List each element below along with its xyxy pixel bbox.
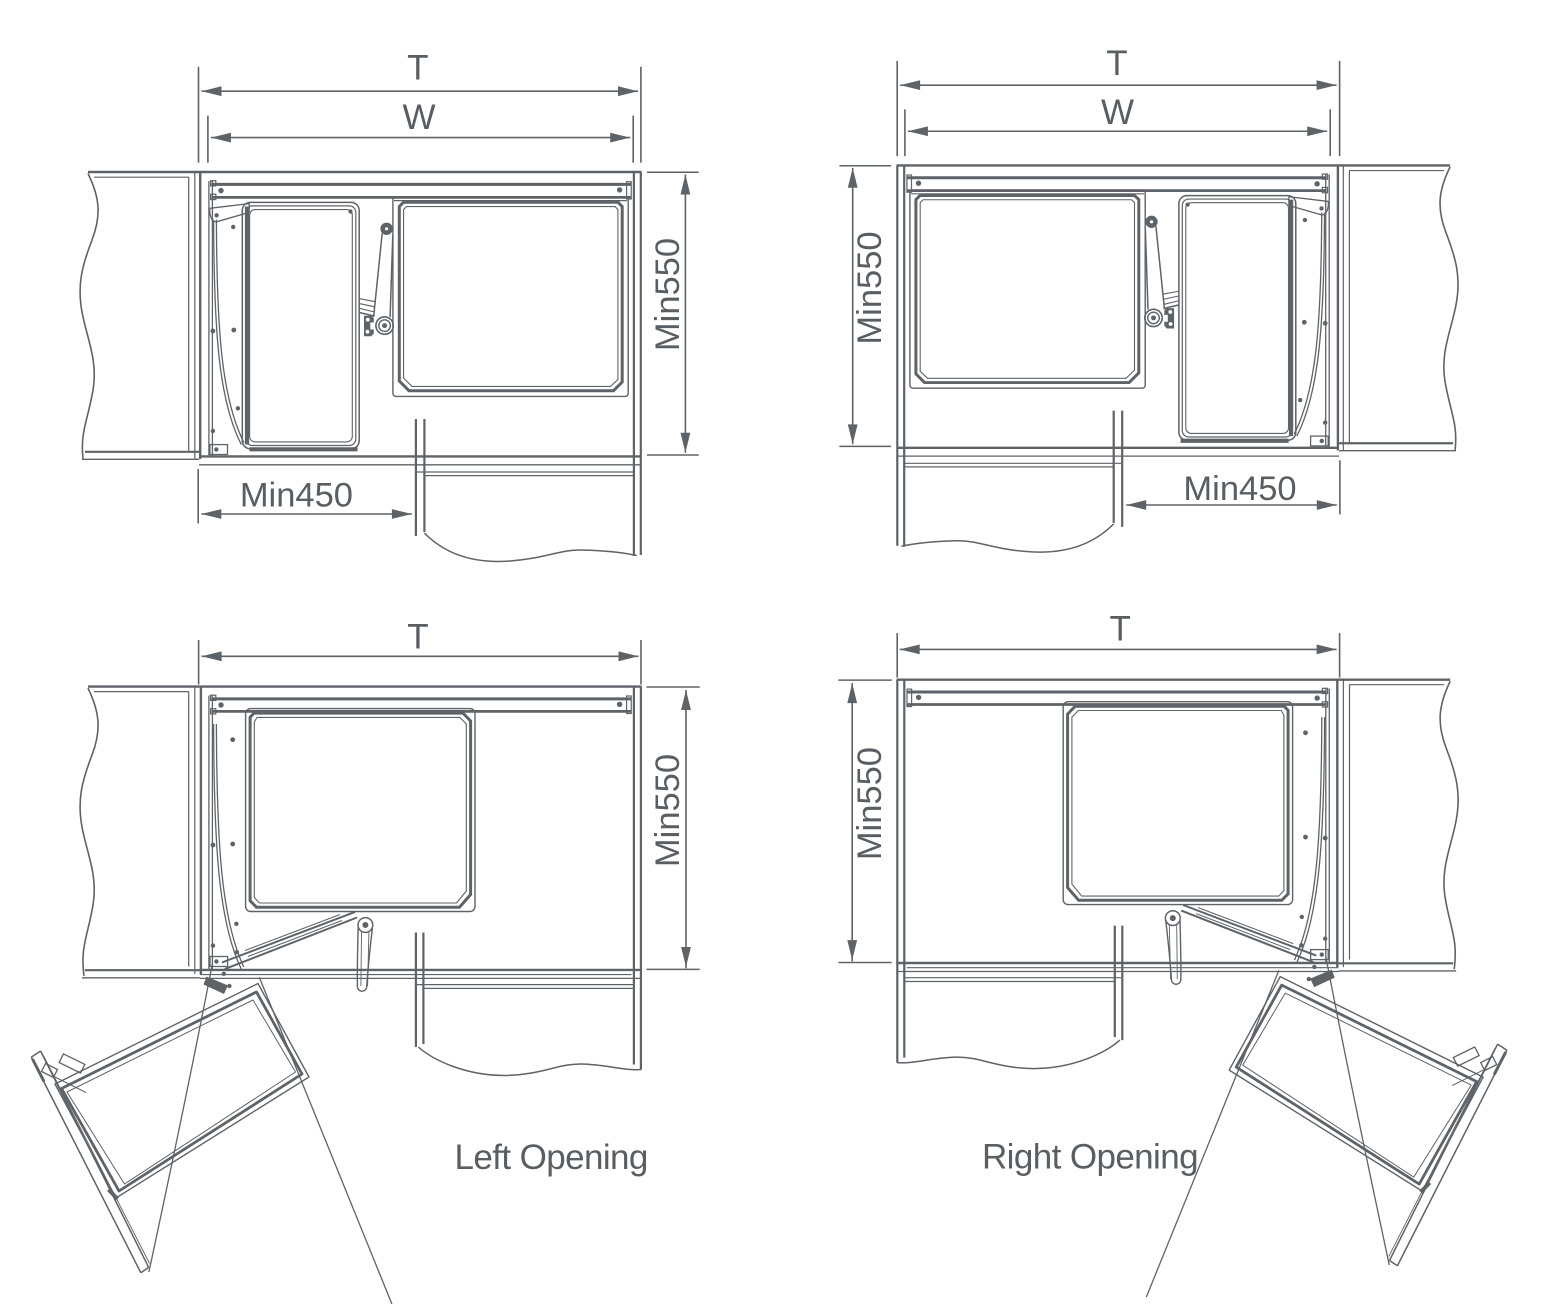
svg-text:Left Opening: Left Opening [455,1138,648,1177]
svg-text:W: W [402,98,435,137]
svg-text:Min550: Min550 [649,238,687,351]
svg-text:T: T [1106,44,1127,83]
svg-text:Min450: Min450 [240,477,353,515]
svg-text:T: T [407,618,428,657]
svg-text:W: W [1101,93,1134,132]
svg-text:T: T [1110,610,1131,649]
svg-text:Min550: Min550 [851,231,889,344]
svg-text:T: T [407,49,428,88]
svg-text:Right Opening: Right Opening [982,1138,1198,1177]
svg-text:Min550: Min550 [649,754,687,867]
svg-text:Min550: Min550 [851,747,889,860]
svg-text:Min450: Min450 [1183,470,1296,508]
